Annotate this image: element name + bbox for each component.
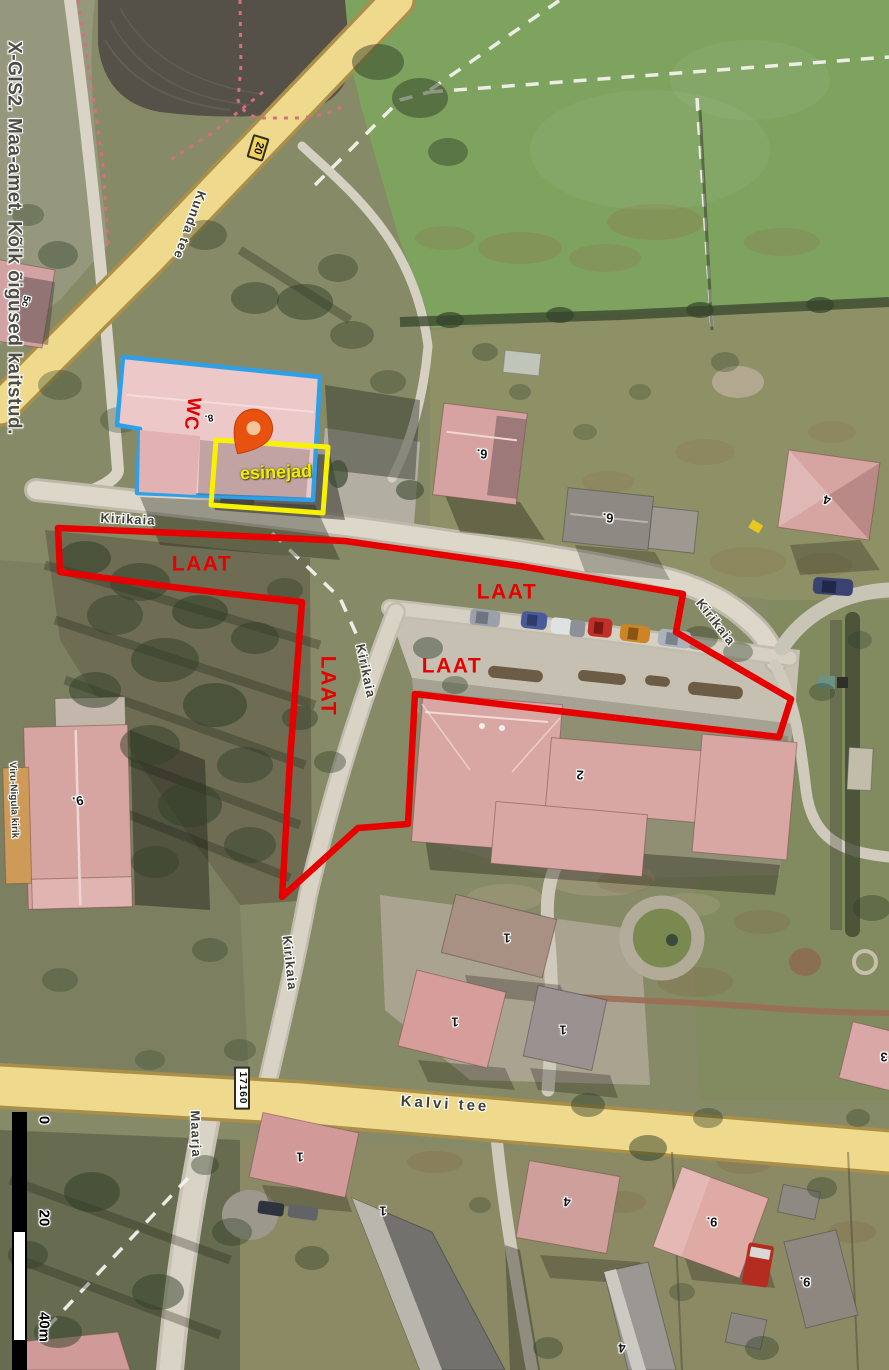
scalebar-segment-black-2 [12,1342,27,1370]
aerial-map-graphics [0,0,889,1370]
scalebar-segment-white [12,1230,27,1342]
map-canvas[interactable]: X-GIS2. Maa-amet. Kõik õigused kaitstud.… [0,0,889,1370]
scalebar-segment-black-1 [12,1112,27,1230]
